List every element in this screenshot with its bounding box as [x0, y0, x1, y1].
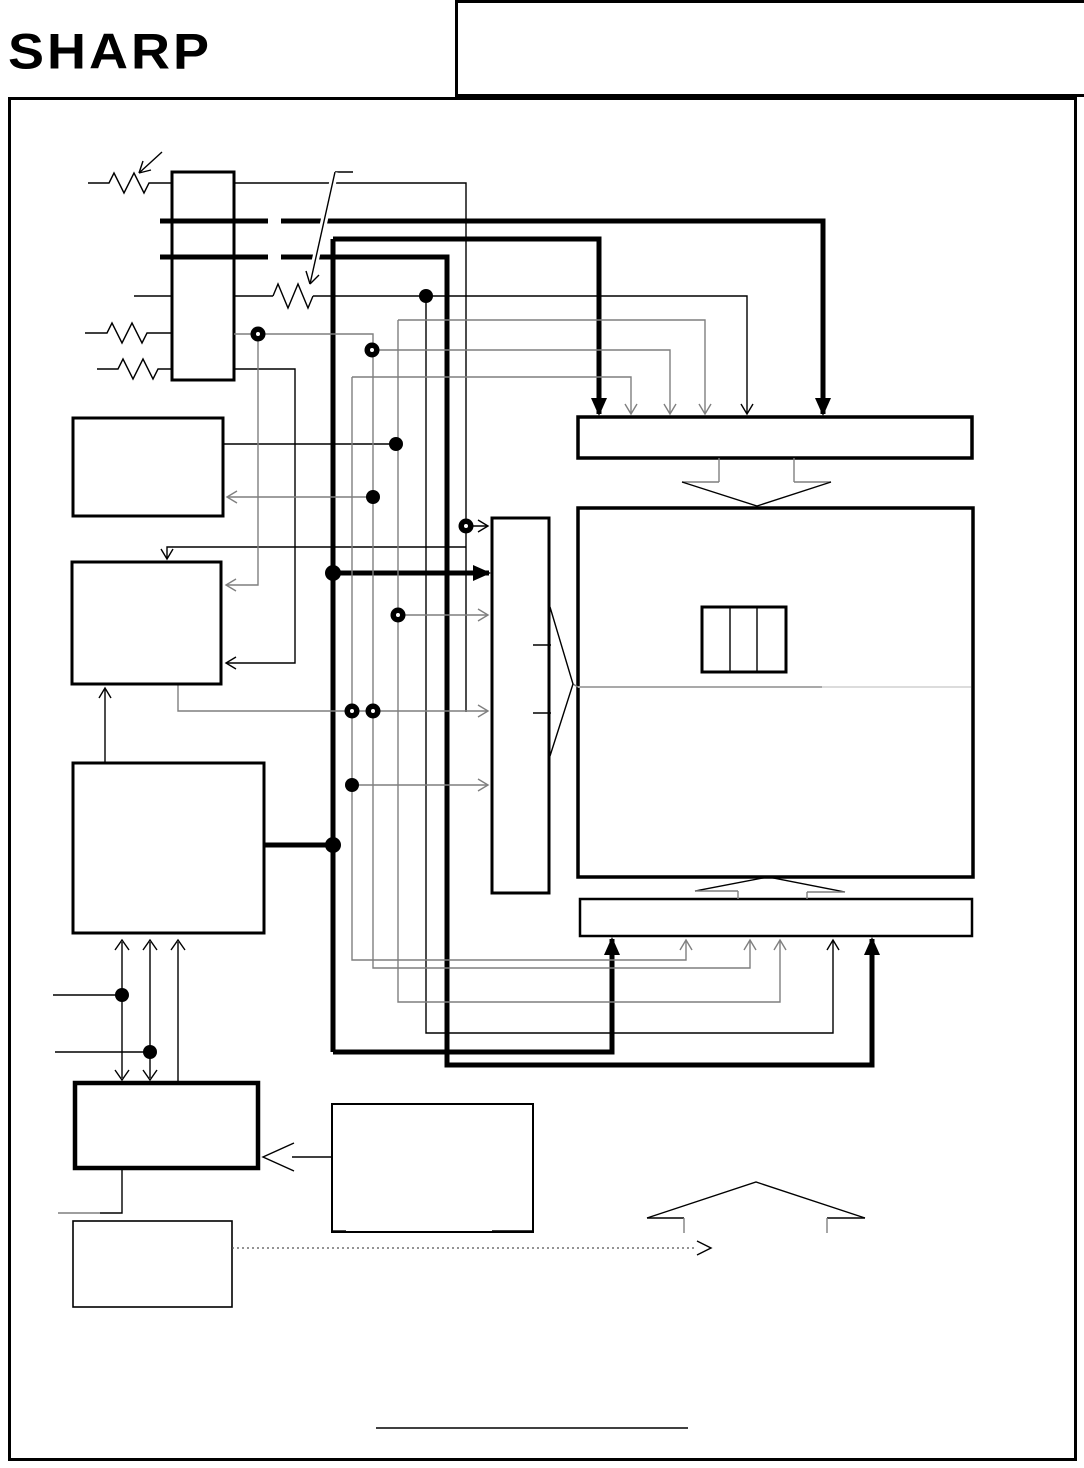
block-bottom-left — [73, 1221, 232, 1307]
block-inner-cells — [702, 607, 786, 672]
resistor-icon — [97, 359, 172, 379]
block-main-large — [578, 508, 973, 877]
hollow-arrow-down — [682, 458, 831, 506]
dotted-link-arrow-icon — [697, 1241, 711, 1255]
block-buffer-column — [492, 518, 549, 893]
bus-branch-bottombus — [333, 939, 612, 1052]
block-mid-left — [72, 562, 221, 684]
resistors — [85, 152, 172, 379]
cpu-lower-links — [53, 940, 185, 1083]
callout-leader — [306, 172, 353, 284]
line-hop — [268, 213, 281, 228]
block-bottom-mid — [332, 1104, 533, 1232]
block-cpu — [73, 763, 264, 933]
block-upper-left — [73, 418, 223, 516]
hollow-arrow-large — [647, 1182, 865, 1233]
resistor-icon — [85, 323, 172, 343]
block-feed-arrow — [263, 1143, 332, 1171]
block-diagram — [0, 0, 1084, 1468]
block-io-left — [172, 172, 234, 380]
resistor-icon — [88, 173, 172, 193]
dotted-link — [232, 1241, 711, 1255]
block-lower-left — [75, 1083, 258, 1168]
hollow-arrow-up — [695, 877, 845, 899]
line-hop — [268, 249, 281, 264]
top-bus-bar — [578, 417, 972, 458]
bottom-bus-bar — [580, 899, 972, 936]
document-page: SHARP — [0, 0, 1084, 1468]
bus-line-top — [160, 221, 823, 414]
resistor-icon — [273, 284, 313, 308]
